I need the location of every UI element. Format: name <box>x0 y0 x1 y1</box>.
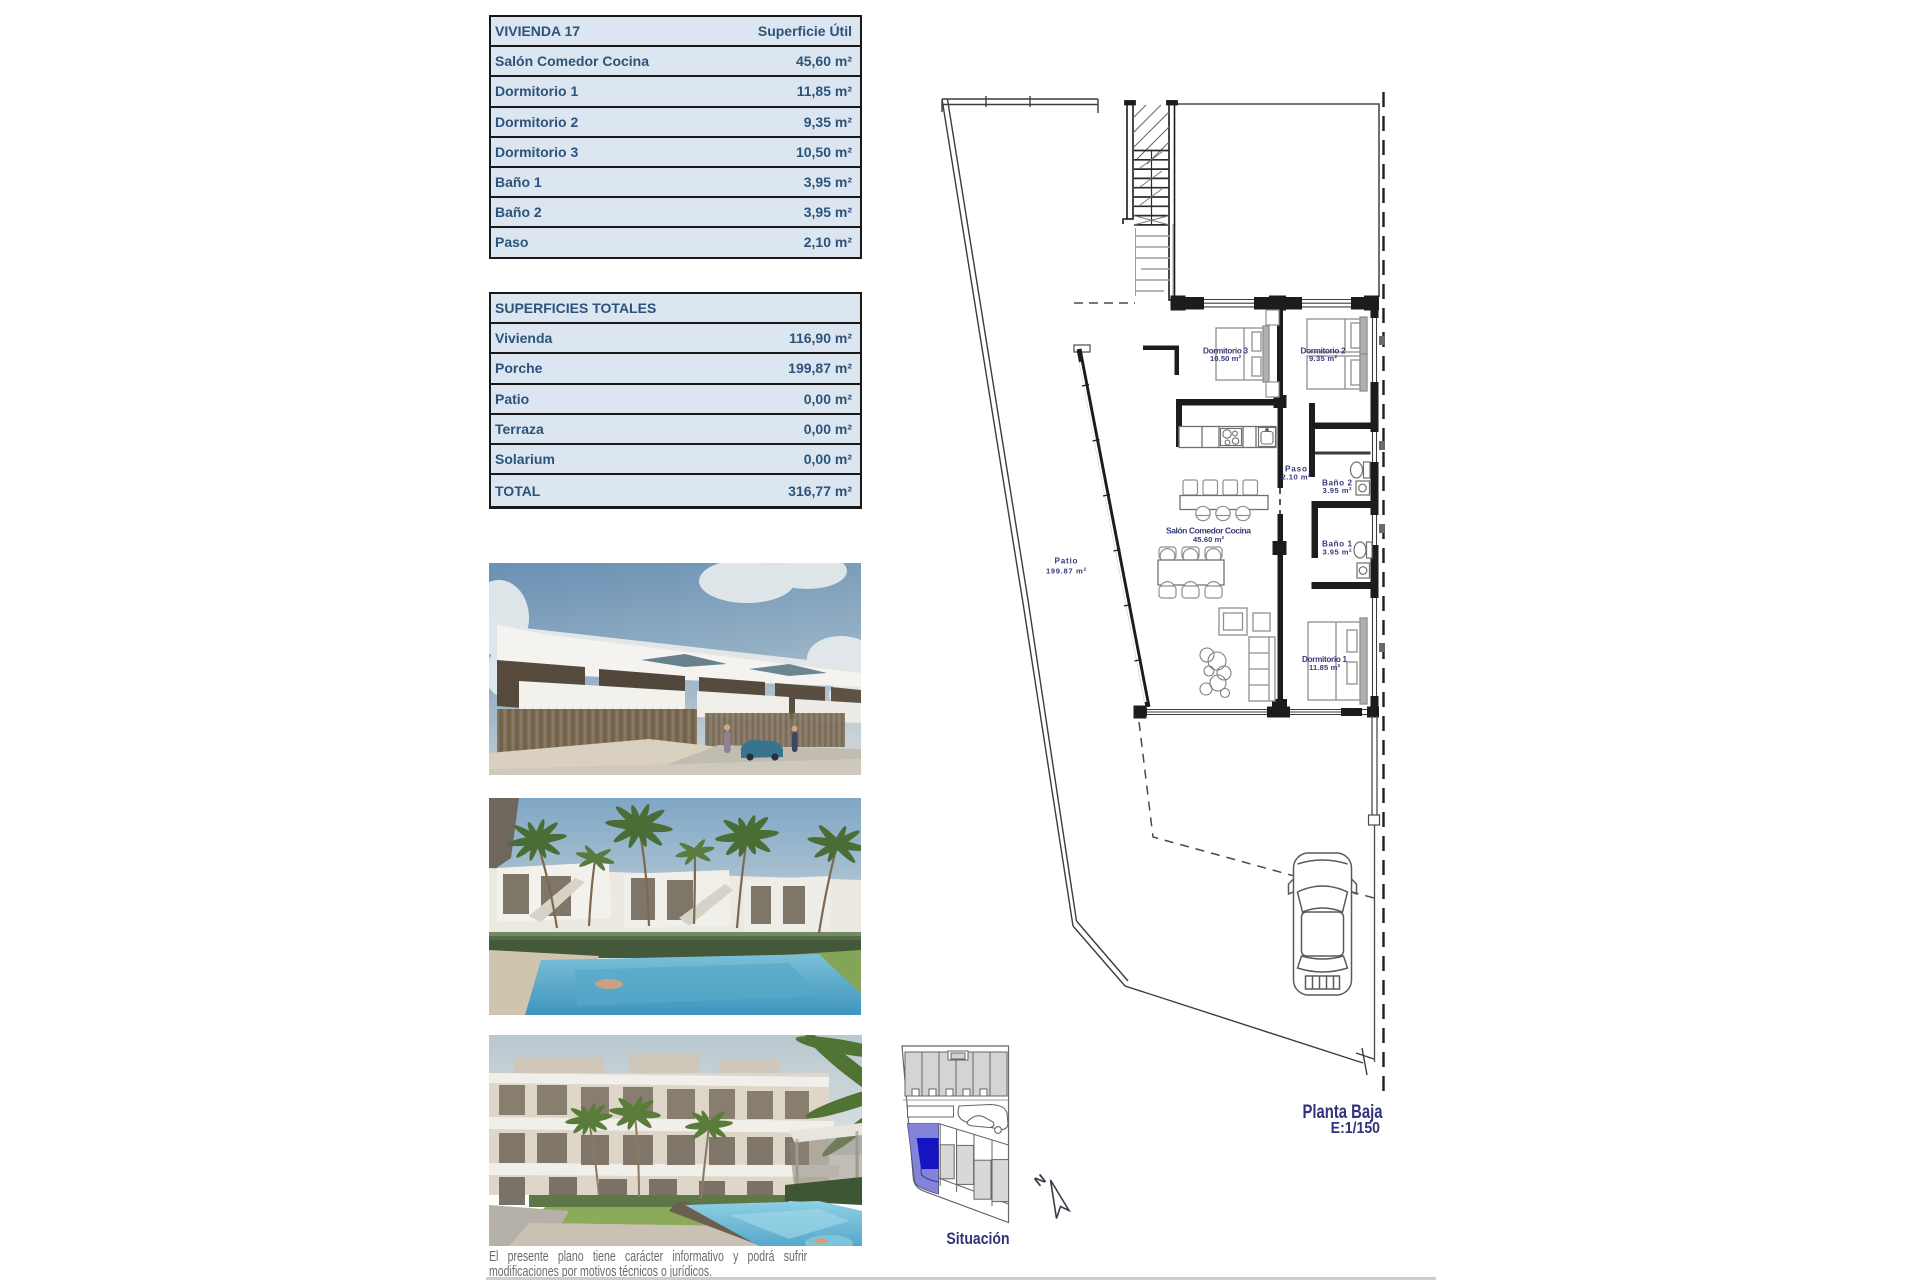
svg-text:2.10 m²: 2.10 m² <box>1282 473 1311 482</box>
svg-text:10.50 m²: 10.50 m² <box>1210 354 1241 363</box>
svg-text:3.95 m²: 3.95 m² <box>1323 486 1352 495</box>
svg-text:9.35 m²: 9.35 m² <box>1309 354 1337 363</box>
svg-text:11.85 m²: 11.85 m² <box>1309 663 1340 672</box>
svg-text:199.87 m²: 199.87 m² <box>1046 567 1086 576</box>
svg-text:Salón Comedor Cocina: Salón Comedor Cocina <box>1166 526 1251 536</box>
svg-text:3.95 m²: 3.95 m² <box>1323 547 1352 556</box>
svg-text:Patio: Patio <box>1055 557 1078 566</box>
svg-text:N: N <box>1031 1171 1049 1190</box>
svg-text:45.60 m²: 45.60 m² <box>1193 535 1224 544</box>
